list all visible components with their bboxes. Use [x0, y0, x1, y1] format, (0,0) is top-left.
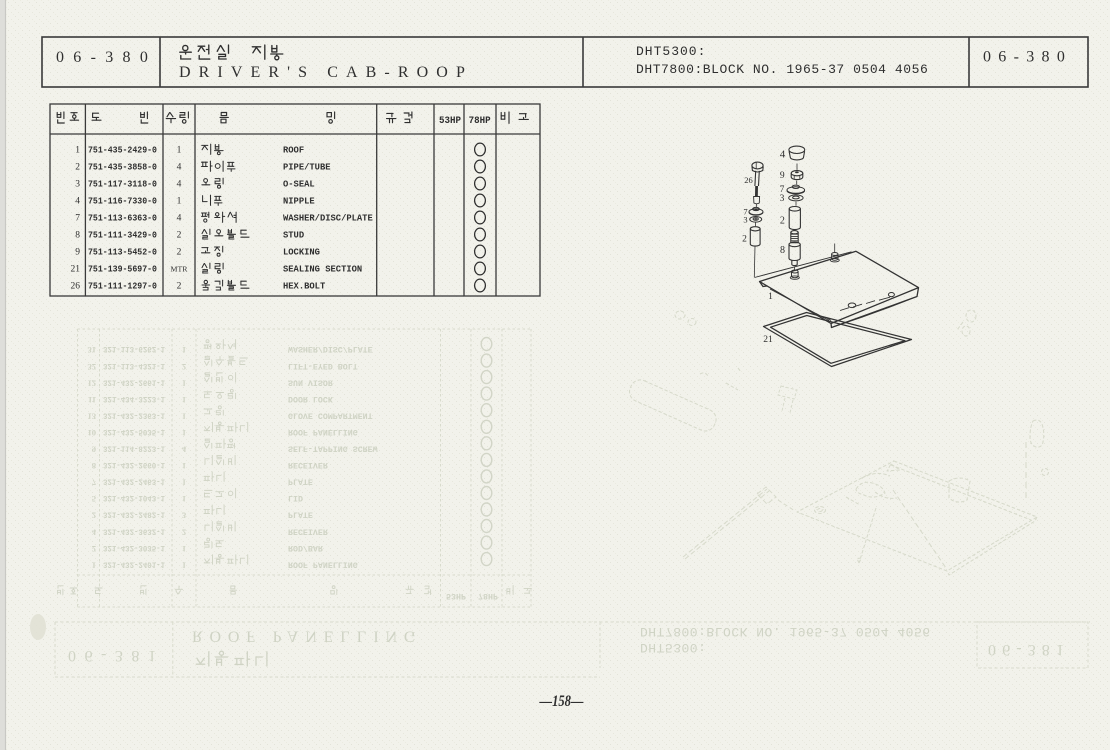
svg-text:2: 2 [177, 282, 182, 292]
svg-text:78HP: 78HP [469, 116, 491, 127]
svg-text:4: 4 [177, 180, 182, 190]
svg-text:ROOF PANELLING: ROOF PANELLING [288, 427, 358, 436]
svg-text:321-113-6262-1: 321-113-6262-1 [103, 344, 165, 354]
svg-text:3: 3 [780, 194, 785, 204]
svg-text:53HP: 53HP [446, 591, 466, 600]
svg-text:1: 1 [182, 345, 186, 355]
svg-text:1: 1 [177, 197, 182, 207]
svg-text:DHT7800:BLOCK NO. 1965-37 0504: DHT7800:BLOCK NO. 1965-37 0504 4056 [640, 624, 931, 639]
svg-text:31: 31 [88, 345, 97, 355]
svg-text:LOCKING: LOCKING [283, 248, 320, 258]
svg-text:1: 1 [92, 560, 96, 570]
svg-text:321-432-2482-1: 321-432-2482-1 [103, 510, 165, 520]
svg-text:751-139-5697-0: 751-139-5697-0 [88, 264, 157, 275]
svg-text:DHT5300:: DHT5300: [636, 44, 706, 59]
svg-text:13: 13 [88, 411, 97, 421]
svg-text:4: 4 [177, 163, 182, 173]
svg-text:21: 21 [71, 265, 81, 275]
svg-text:26: 26 [744, 175, 753, 185]
svg-text:751-113-6363-0: 751-113-6363-0 [88, 213, 157, 224]
svg-text:10: 10 [88, 428, 97, 438]
svg-text:ROD/BAR: ROD/BAR [288, 543, 323, 553]
svg-text:321-432-2401-1: 321-432-2401-1 [103, 559, 165, 569]
svg-text:751-113-5452-0: 751-113-5452-0 [88, 247, 157, 258]
svg-text:8: 8 [75, 231, 80, 241]
svg-text:2: 2 [780, 215, 785, 226]
svg-text:7: 7 [75, 214, 80, 224]
svg-text:ROOF PANELLING: ROOF PANELLING [192, 628, 422, 645]
svg-text:321-432-3632-1: 321-432-3632-1 [103, 526, 165, 536]
svg-text:1: 1 [182, 544, 186, 554]
svg-text:12: 12 [88, 378, 97, 388]
svg-text:06-381: 06-381 [988, 641, 1070, 658]
svg-text:8: 8 [92, 461, 96, 471]
svg-text:—158—: —158— [539, 693, 584, 710]
svg-text:1: 1 [182, 494, 186, 504]
svg-text:WASHER/DISC/PLATE: WASHER/DISC/PLATE [283, 214, 373, 224]
svg-text:1: 1 [182, 478, 186, 488]
svg-text:06-380: 06-380 [56, 49, 157, 66]
svg-text:11: 11 [88, 395, 96, 405]
svg-text:06-381: 06-381 [68, 647, 164, 664]
svg-text:SUN VISOR: SUN VISOR [288, 377, 333, 386]
svg-text:1: 1 [182, 461, 186, 471]
svg-text:GLOVE COMPARTMENT: GLOVE COMPARTMENT [288, 410, 373, 419]
svg-text:321-113-4321-1: 321-113-4321-1 [103, 361, 165, 371]
svg-text:1: 1 [75, 146, 80, 156]
svg-text:9: 9 [780, 171, 785, 181]
svg-text:21: 21 [763, 335, 773, 345]
svg-text:78HP: 78HP [478, 591, 498, 600]
svg-text:8: 8 [780, 245, 785, 256]
svg-text:321-432-2463-1: 321-432-2463-1 [103, 477, 165, 487]
svg-text:3: 3 [182, 511, 186, 521]
svg-text:WASHER/DISC/PLATE: WASHER/DISC/PLATE [288, 344, 373, 354]
svg-text:321-434-3223-1: 321-434-3223-1 [103, 394, 165, 404]
svg-text:2: 2 [177, 231, 182, 241]
svg-text:2: 2 [92, 544, 96, 554]
svg-text:4: 4 [75, 197, 80, 207]
svg-text:LID: LID [288, 493, 303, 502]
svg-text:751-116-7330-0: 751-116-7330-0 [88, 196, 157, 207]
svg-text:1: 1 [182, 395, 186, 405]
svg-text:HEX.BOLT: HEX.BOLT [283, 282, 326, 292]
svg-text:53HP: 53HP [439, 116, 461, 127]
svg-text:RECEIVER: RECEIVER [288, 526, 328, 535]
svg-text:ROOF PANELLING: ROOF PANELLING [288, 559, 358, 568]
svg-text:2: 2 [92, 511, 96, 521]
svg-text:06-380: 06-380 [983, 49, 1072, 66]
svg-text:1: 1 [182, 411, 186, 421]
svg-text:DHT7800:BLOCK NO. 1965-37 0504: DHT7800:BLOCK NO. 1965-37 0504 4056 [636, 62, 928, 77]
svg-text:RECEIVER: RECEIVER [288, 460, 328, 469]
svg-text:SEALING SECTION: SEALING SECTION [283, 265, 362, 275]
svg-text:321-432-2660-1: 321-432-2660-1 [103, 460, 165, 470]
svg-text:1: 1 [182, 378, 186, 388]
svg-text:321-432-3035-1: 321-432-3035-1 [103, 543, 165, 553]
svg-text:STUD: STUD [283, 231, 304, 241]
svg-text:2: 2 [182, 527, 186, 537]
svg-text:SELF-TAPPING SCREW: SELF-TAPPING SCREW [288, 444, 378, 453]
svg-text:O-SEAL: O-SEAL [283, 180, 315, 190]
svg-text:32: 32 [88, 362, 97, 372]
svg-text:2: 2 [742, 235, 747, 245]
svg-text:2: 2 [75, 163, 80, 173]
svg-text:9: 9 [92, 445, 96, 455]
svg-text:LIFT-EYED BOLT: LIFT-EYED BOLT [288, 361, 358, 370]
svg-text:5: 5 [92, 494, 96, 504]
svg-text:751-117-3118-0: 751-117-3118-0 [88, 179, 157, 190]
svg-text:751-111-3429-0: 751-111-3429-0 [88, 230, 157, 241]
svg-text:751-435-3858-0: 751-435-3858-0 [88, 162, 157, 173]
svg-text:DHT5300:: DHT5300: [640, 640, 706, 655]
svg-text:NIPPLE: NIPPLE [283, 197, 315, 207]
svg-text:4: 4 [177, 214, 182, 224]
svg-text:PLATE: PLATE [288, 477, 313, 486]
svg-text:4: 4 [780, 149, 786, 161]
svg-text:3: 3 [75, 180, 80, 190]
svg-text:1: 1 [768, 292, 773, 302]
svg-text:DRIVER'S CAB-ROOP: DRIVER'S CAB-ROOP [179, 64, 473, 81]
svg-text:1: 1 [182, 428, 186, 438]
svg-text:PIPE/TUBE: PIPE/TUBE [283, 163, 331, 173]
svg-text:2: 2 [182, 362, 186, 372]
svg-text:751-111-1297-0: 751-111-1297-0 [88, 281, 157, 292]
svg-text:DOOR LOCK: DOOR LOCK [288, 394, 333, 403]
svg-text:MTR: MTR [171, 265, 189, 274]
svg-text:321-432-1043-1: 321-432-1043-1 [103, 493, 165, 503]
svg-text:321-114-8223-1: 321-114-8223-1 [103, 444, 165, 454]
svg-text:321-432-2661-1: 321-432-2661-1 [103, 377, 165, 387]
svg-text:751-435-2429-0: 751-435-2429-0 [88, 145, 157, 156]
svg-text:ROOF: ROOF [283, 146, 304, 156]
svg-text:3: 3 [743, 215, 747, 225]
svg-text:26: 26 [71, 282, 81, 292]
svg-text:1: 1 [182, 560, 186, 570]
svg-text:PLATE: PLATE [288, 510, 313, 519]
svg-text:321-432-2363-1: 321-432-2363-1 [103, 410, 165, 420]
svg-text:1: 1 [177, 146, 182, 156]
svg-text:9: 9 [75, 248, 80, 258]
svg-text:321-432-5035-1: 321-432-5035-1 [103, 427, 165, 437]
svg-text:2: 2 [177, 248, 182, 258]
